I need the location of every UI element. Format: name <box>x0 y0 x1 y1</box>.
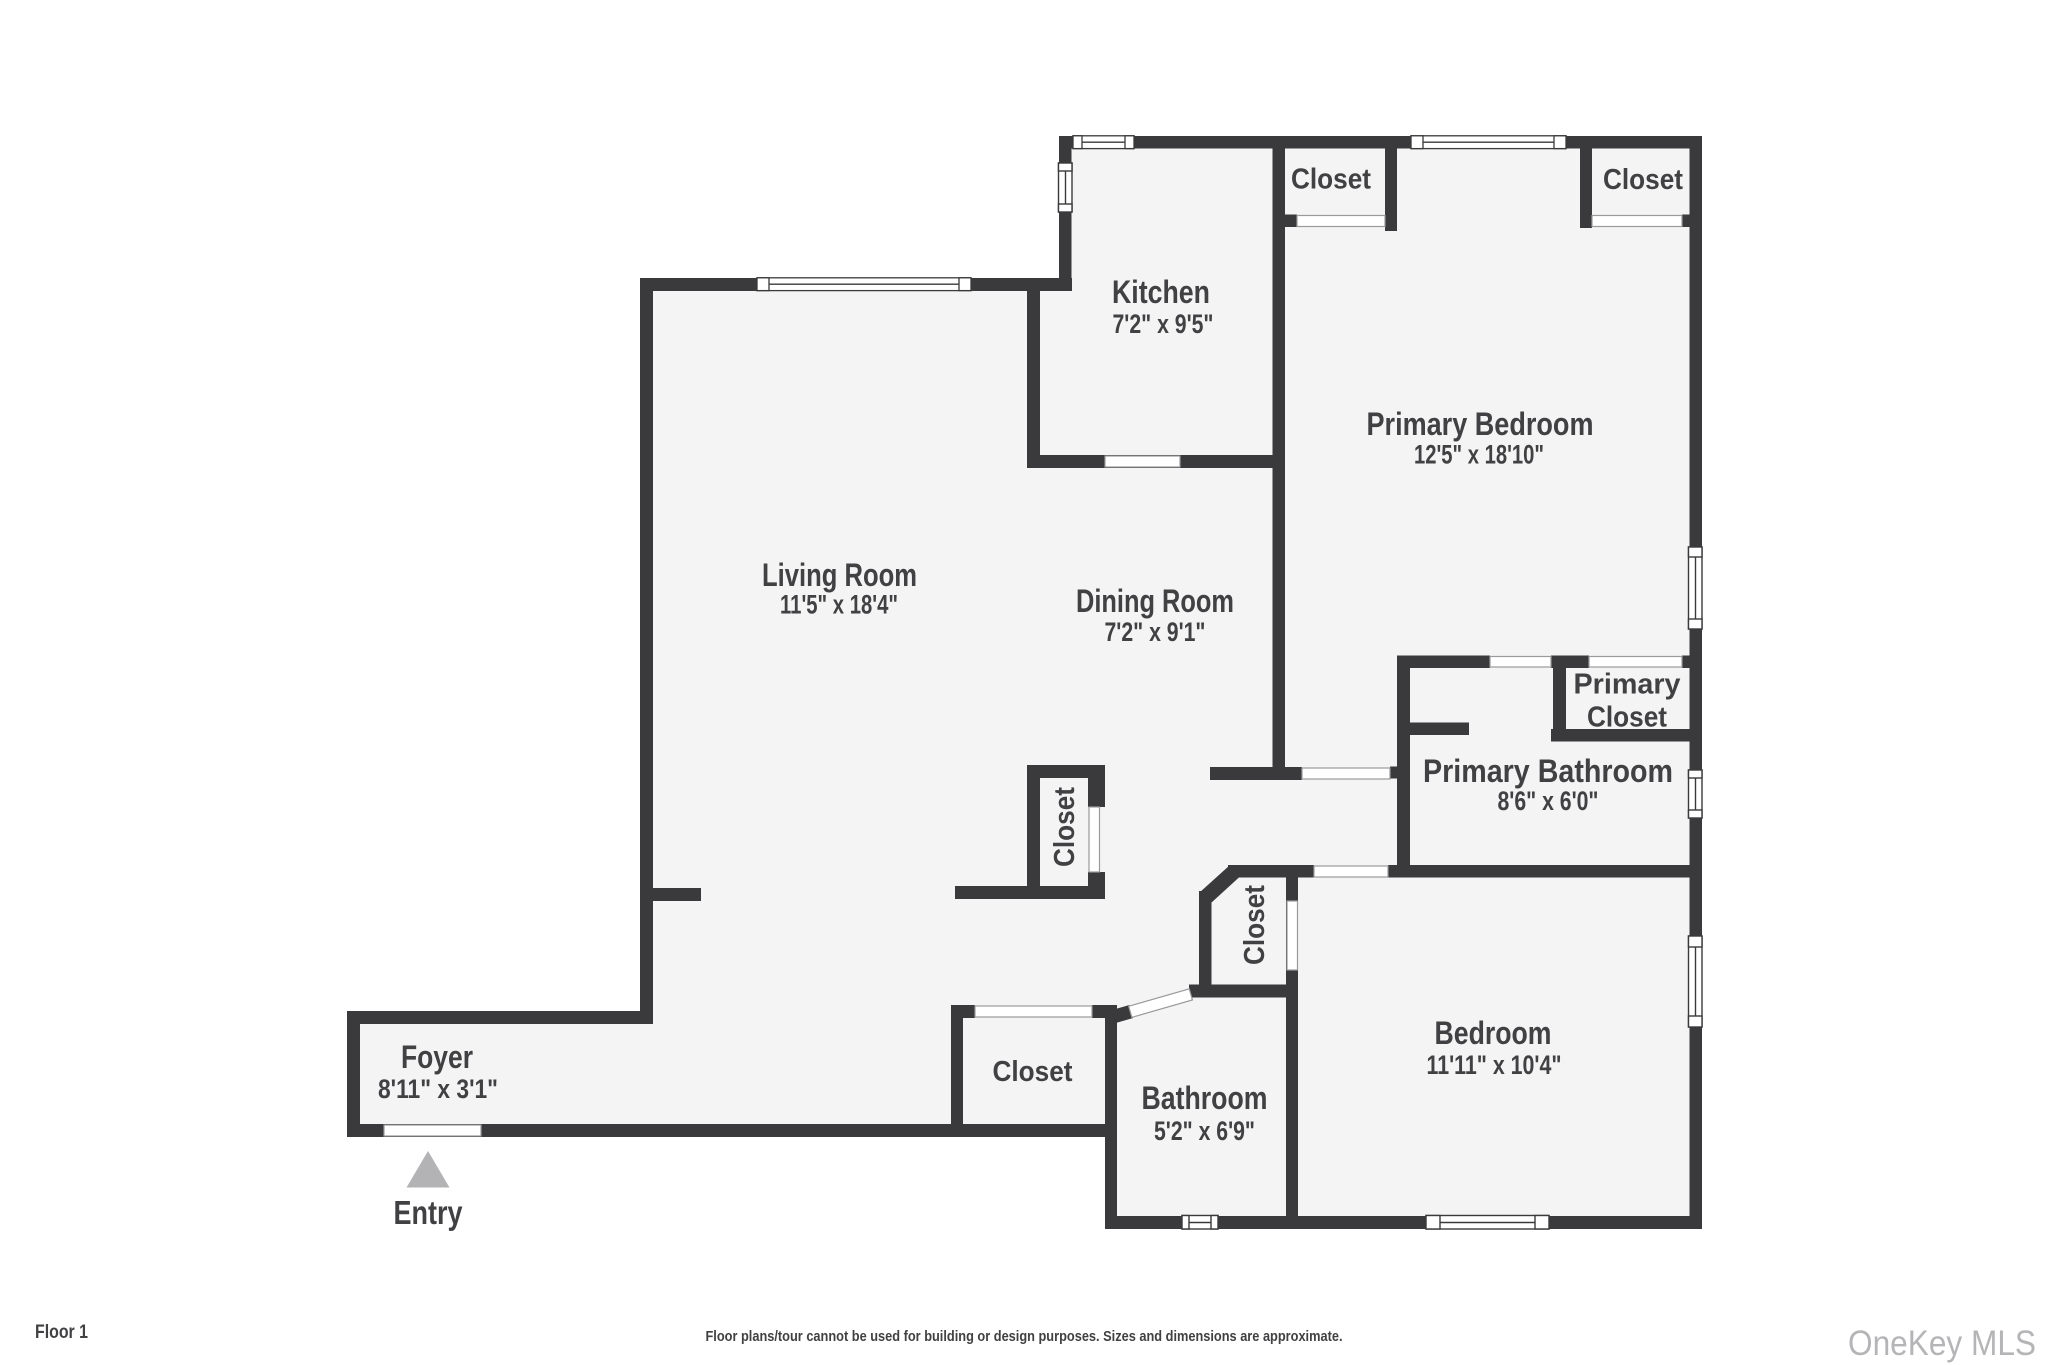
svg-text:Closet: Closet <box>1587 702 1667 734</box>
svg-text:Foyer: Foyer <box>401 1039 473 1075</box>
svg-text:Kitchen: Kitchen <box>1112 274 1210 310</box>
svg-text:Closet: Closet <box>1291 164 1371 196</box>
svg-text:Floor 1: Floor 1 <box>35 1322 88 1343</box>
svg-text:11'11" x 10'4": 11'11" x 10'4" <box>1427 1050 1562 1080</box>
svg-text:OneKey MLS: OneKey MLS <box>1848 1324 2036 1363</box>
svg-text:Floor plans/tour cannot be use: Floor plans/tour cannot be used for buil… <box>706 1329 1343 1345</box>
svg-text:11'5" x 18'4": 11'5" x 18'4" <box>780 590 898 620</box>
svg-text:Closet: Closet <box>1603 164 1683 196</box>
svg-text:Bedroom: Bedroom <box>1435 1015 1552 1051</box>
svg-text:Living Room: Living Room <box>762 557 917 593</box>
svg-text:Dining Room: Dining Room <box>1076 583 1234 619</box>
svg-text:7'2" x 9'5": 7'2" x 9'5" <box>1113 309 1214 339</box>
svg-text:5'2" x 6'9": 5'2" x 6'9" <box>1154 1116 1255 1146</box>
svg-text:Primary Bathroom: Primary Bathroom <box>1423 753 1673 789</box>
svg-text:Closet: Closet <box>1239 885 1271 965</box>
svg-text:8'11" x 3'1": 8'11" x 3'1" <box>378 1074 498 1104</box>
svg-text:Primary: Primary <box>1574 669 1681 701</box>
svg-text:Entry: Entry <box>394 1194 464 1231</box>
svg-text:Closet: Closet <box>993 1056 1073 1088</box>
svg-text:12'5" x 18'10": 12'5" x 18'10" <box>1414 440 1544 470</box>
svg-text:8'6" x 6'0": 8'6" x 6'0" <box>1498 786 1599 816</box>
svg-text:Primary Bedroom: Primary Bedroom <box>1367 406 1594 442</box>
svg-text:7'2" x 9'1": 7'2" x 9'1" <box>1105 617 1206 647</box>
svg-text:Bathroom: Bathroom <box>1142 1080 1268 1116</box>
svg-text:Closet: Closet <box>1049 787 1081 867</box>
